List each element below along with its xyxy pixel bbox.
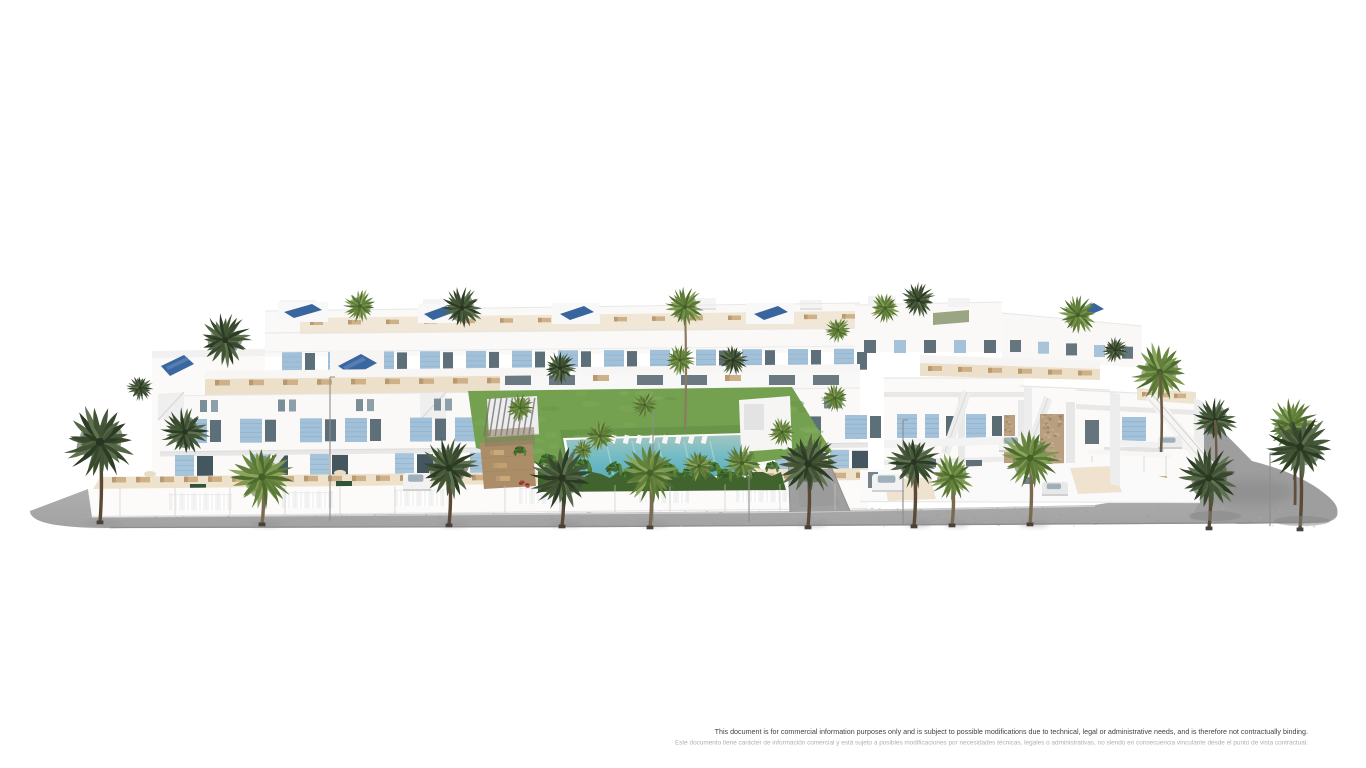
svg-text:Este documento tiene carácter: Este documento tiene carácter de informa… — [675, 740, 1308, 747]
svg-text:This document is for commercia: This document is for commercial informat… — [715, 728, 1308, 736]
